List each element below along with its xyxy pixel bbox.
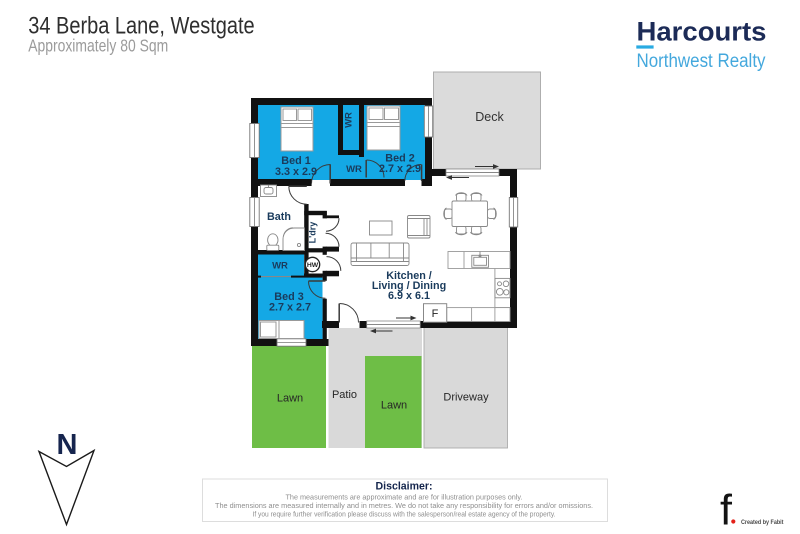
svg-text:L'dry: L'dry bbox=[308, 222, 318, 244]
svg-text:Driveway: Driveway bbox=[443, 392, 489, 404]
svg-text:Lawn: Lawn bbox=[277, 393, 303, 405]
svg-text:Disclaimer:: Disclaimer: bbox=[376, 481, 433, 493]
svg-text:Created by Fabit: Created by Fabit bbox=[741, 519, 784, 526]
svg-text:WR: WR bbox=[272, 261, 288, 272]
svg-text:F: F bbox=[432, 308, 439, 320]
svg-text:WR: WR bbox=[346, 164, 362, 175]
svg-text:3.3 x 2.9: 3.3 x 2.9 bbox=[275, 166, 317, 178]
svg-text:HW: HW bbox=[307, 262, 319, 269]
svg-text:6.9 x 6.1: 6.9 x 6.1 bbox=[388, 290, 430, 302]
svg-text:2.7 x 2.7: 2.7 x 2.7 bbox=[269, 302, 311, 314]
svg-text:WR: WR bbox=[344, 112, 355, 128]
svg-text:If you require further verific: If you require further verification plea… bbox=[253, 509, 556, 518]
svg-text:Bath: Bath bbox=[267, 211, 291, 223]
svg-text:f: f bbox=[720, 487, 733, 534]
svg-text:2.7 x 2.9: 2.7 x 2.9 bbox=[379, 163, 421, 175]
svg-text:Northwest Realty: Northwest Realty bbox=[637, 51, 766, 72]
svg-text:N: N bbox=[57, 429, 78, 461]
svg-text:Deck: Deck bbox=[475, 110, 504, 124]
svg-text:Lawn: Lawn bbox=[381, 400, 407, 412]
svg-text:Harcourts: Harcourts bbox=[637, 16, 767, 46]
svg-text:Patio: Patio bbox=[332, 389, 357, 401]
svg-text:Approximately 80 Sqm: Approximately 80 Sqm bbox=[28, 35, 168, 55]
